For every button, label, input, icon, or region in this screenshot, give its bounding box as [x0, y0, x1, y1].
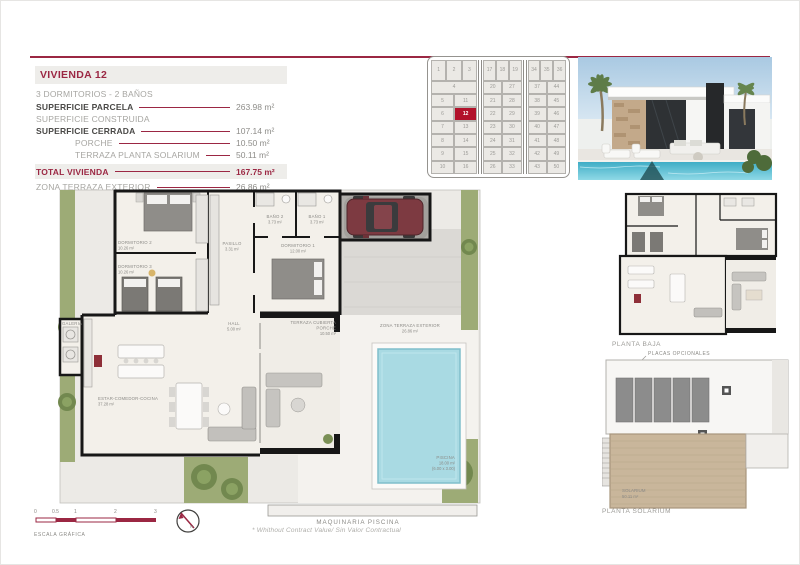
room-label: BAÑO 1 [309, 214, 326, 219]
site-plan-cell-15: 15 [454, 147, 477, 160]
svg-text:2: 2 [114, 509, 117, 515]
site-plan-cell-10: 10 [431, 161, 454, 174]
leader-line [141, 131, 230, 132]
planta-solarium-caption: PLANTA SOLARIUM [602, 508, 671, 515]
spec-row-porche: PORCHE 10.50 m² [35, 137, 287, 149]
unit-subtitle: 3 DORMITORIOS - 2 BAÑOS [36, 89, 287, 99]
site-plan-block-c: 3435363744384539464047414842494350 [528, 60, 566, 174]
porch-sofa-icon [266, 373, 322, 387]
spec-row-parcela: SUPERFICIE PARCELA 263.98 m² [35, 101, 287, 113]
site-plan-cell-25: 25 [483, 147, 502, 160]
site-plan-cell-32: 32 [502, 147, 521, 160]
site-plan-cell-29: 29 [502, 107, 521, 120]
pool-coping [578, 160, 772, 162]
room-area: 12.00 m² [290, 249, 307, 254]
room-dims: (6.00 x 3.00) [432, 466, 456, 471]
dining-table-icon [176, 383, 202, 429]
svg-text:3: 3 [154, 509, 157, 515]
pool-machinery-label: MAQUINARIA PISCINA [316, 519, 399, 526]
room-label: ZONA TERRAZA EXTERIOR [380, 323, 440, 328]
villa-photo [578, 57, 772, 180]
site-plan-cell-17: 17 [483, 60, 496, 81]
unit-title: VIVIENDA 12 [35, 66, 287, 84]
site-plan-cell-30: 30 [502, 121, 521, 134]
room-area: 3.73 m² [310, 220, 325, 225]
kitchen-island-icon [118, 345, 164, 358]
site-plan-cell-16: 16 [454, 161, 477, 174]
site-plan-block-b: 1718192027212822292330243125322633 [483, 60, 521, 174]
footnote: * Whithout Contract Value/ Sin Valor Con… [252, 527, 401, 534]
leader-line [115, 171, 230, 172]
site-plan-cell-13: 13 [454, 121, 477, 134]
room-label: DORMITORIO 3 [118, 264, 152, 269]
placas-label: PLACAS OPCIONALES [648, 351, 710, 357]
room-area: 5.00 m² [227, 327, 242, 332]
room-label: PORCHE [316, 326, 336, 331]
site-plan-cell-24: 24 [483, 134, 502, 147]
svg-text:0: 0 [34, 509, 37, 515]
site-plan-cell-46: 46 [547, 107, 566, 120]
site-plan-cell-23: 23 [483, 121, 502, 134]
room-area: 10.26 m² [118, 246, 135, 251]
room-label: DORMITORIO 2 [118, 240, 152, 245]
room-area: 37.28 m² [98, 402, 115, 407]
site-plan-cell-2: 2 [446, 60, 461, 81]
solar-panels-icon [616, 378, 709, 422]
spec-row-terraza-solarium: TERRAZA PLANTA SOLARIUM 50.11 m² [35, 149, 287, 161]
room-label: PASILLO [223, 241, 242, 246]
room-area: 26.86 m² [402, 329, 419, 334]
leader-line [206, 155, 230, 156]
site-plan-cell-3: 3 [462, 60, 477, 81]
site-plan-cell-48: 48 [547, 134, 566, 147]
site-plan-cell-18: 18 [496, 60, 509, 81]
room-area: 18.00 m² [439, 461, 456, 466]
solarium-area: 50.11 m² [622, 494, 639, 499]
solarium-label: SOLARIUM [622, 488, 646, 493]
solarium-drawing: PLACAS OPCIONALES SOLARIUM 50.11 m² [602, 346, 794, 514]
room-label: HALL [228, 321, 240, 326]
planta-baja-mini-plan [616, 190, 788, 340]
room-area: 10.26 m² [118, 270, 135, 275]
deck-terrace [746, 434, 788, 468]
room-label: DORMITORIO 1 [281, 243, 315, 248]
site-plan-cell-35: 35 [540, 60, 553, 81]
leader-line [139, 107, 230, 108]
site-plan-street [523, 60, 527, 174]
ground-floor-plan-drawing: DORMITORIO 2 10.26 m² DORMITORIO 3 10.26… [58, 187, 483, 532]
carport [340, 194, 430, 240]
site-plan-cell-42: 42 [528, 147, 547, 160]
site-plan-street [478, 60, 482, 174]
site-plan-cell-50: 50 [547, 161, 566, 174]
site-plan-cell-44: 44 [547, 81, 566, 94]
site-plan-cell-21: 21 [483, 94, 502, 107]
scale-label: ESCALA GRÁFICA [34, 531, 86, 538]
car-icon [347, 196, 423, 238]
scale-segments [36, 518, 156, 522]
ground-floor-plan: DORMITORIO 2 10.26 m² DORMITORIO 3 10.26… [58, 187, 483, 532]
driveway [340, 229, 478, 317]
svg-text:0.5: 0.5 [52, 509, 59, 515]
site-plan-cell-9: 9 [431, 147, 454, 160]
site-plan: 12345116127138149151016 1718192027212822… [427, 56, 570, 178]
room-area: 10.50 m² [320, 331, 337, 336]
scale-bar-drawing: 0 0.5 1 2 3 ESCALA GRÁFICA N [30, 503, 240, 551]
site-plan-cell-34: 34 [528, 60, 541, 81]
svg-text:N: N [190, 524, 193, 529]
site-plan-cell-8: 8 [431, 134, 454, 147]
site-plan-block-a: 12345116127138149151016 [431, 60, 477, 174]
room-area: 3.31 m² [225, 247, 240, 252]
spec-row-total: TOTAL VIVIENDA 167.75 m² [35, 164, 287, 179]
pool-machinery-box [268, 505, 477, 516]
planta-baja-drawing [616, 190, 788, 340]
washer-icon [63, 327, 78, 342]
room-label: PISCINA [436, 455, 455, 460]
site-plan-cell-26: 26 [483, 161, 502, 174]
spec-row-construida: SUPERFICIE CONSTRUIDA [35, 113, 287, 125]
site-plan-cell-45: 45 [547, 94, 566, 107]
site-plan-cell-38: 38 [528, 94, 547, 107]
room-label: TERRAZA CUBIERTA [290, 320, 336, 325]
dryer-icon [63, 347, 78, 362]
brochure-page: VIVIENDA 12 3 DORMITORIOS - 2 BAÑOS SUPE… [0, 0, 800, 565]
site-plan-cell-5: 5 [431, 94, 454, 107]
site-plan-cell-14: 14 [454, 134, 477, 147]
site-plan-cell-36: 36 [553, 60, 566, 81]
oven-icon [94, 355, 102, 367]
solarium-plan: PLACAS OPCIONALES SOLARIUM 50.11 m² [602, 346, 794, 514]
room-area: 3.73 m² [268, 220, 283, 225]
site-plan-cell-40: 40 [528, 121, 547, 134]
villa-illustration [578, 57, 772, 180]
site-plan-cell-4: 4 [431, 81, 477, 94]
compass-icon: N [177, 510, 199, 532]
site-plan-cell-20: 20 [483, 81, 502, 94]
site-plan-cell-31: 31 [502, 134, 521, 147]
site-plan-cell-33: 33 [502, 161, 521, 174]
site-plan-cell-41: 41 [528, 134, 547, 147]
scale-bar: 0 0.5 1 2 3 ESCALA GRÁFICA N [30, 503, 240, 551]
spec-panel: VIVIENDA 12 3 DORMITORIOS - 2 BAÑOS SUPE… [35, 66, 287, 193]
scale-ticks: 0 0.5 1 2 3 [34, 509, 157, 515]
site-plan-cell-22: 22 [483, 107, 502, 120]
svg-text:1: 1 [74, 509, 77, 515]
site-plan-cell-27: 27 [502, 81, 521, 94]
room-label: ESTAR-COMEDOR-COCINA [98, 396, 158, 401]
site-plan-cell-7: 7 [431, 121, 454, 134]
spec-row-cerrada: SUPERFICIE CERRADA 107.14 m² [35, 125, 287, 137]
site-plan-cell-19: 19 [509, 60, 522, 81]
site-plan-cell-37: 37 [528, 81, 547, 94]
stairs [602, 438, 610, 486]
site-plan-cell-28: 28 [502, 94, 521, 107]
site-plan-cell-11: 11 [454, 94, 477, 107]
site-plan-cell-43: 43 [528, 161, 547, 174]
site-plan-cell-39: 39 [528, 107, 547, 120]
room-label: GALERIA [62, 321, 82, 326]
site-plan-cell-47: 47 [547, 121, 566, 134]
site-plan-cell-1: 1 [431, 60, 446, 81]
roof-edge [772, 360, 788, 434]
leader-line [119, 143, 230, 144]
site-plan-cell-12: 12 [454, 107, 477, 120]
site-plan-cell-6: 6 [431, 107, 454, 120]
site-plan-cell-49: 49 [547, 147, 566, 160]
room-label: BAÑO 2 [267, 214, 284, 219]
